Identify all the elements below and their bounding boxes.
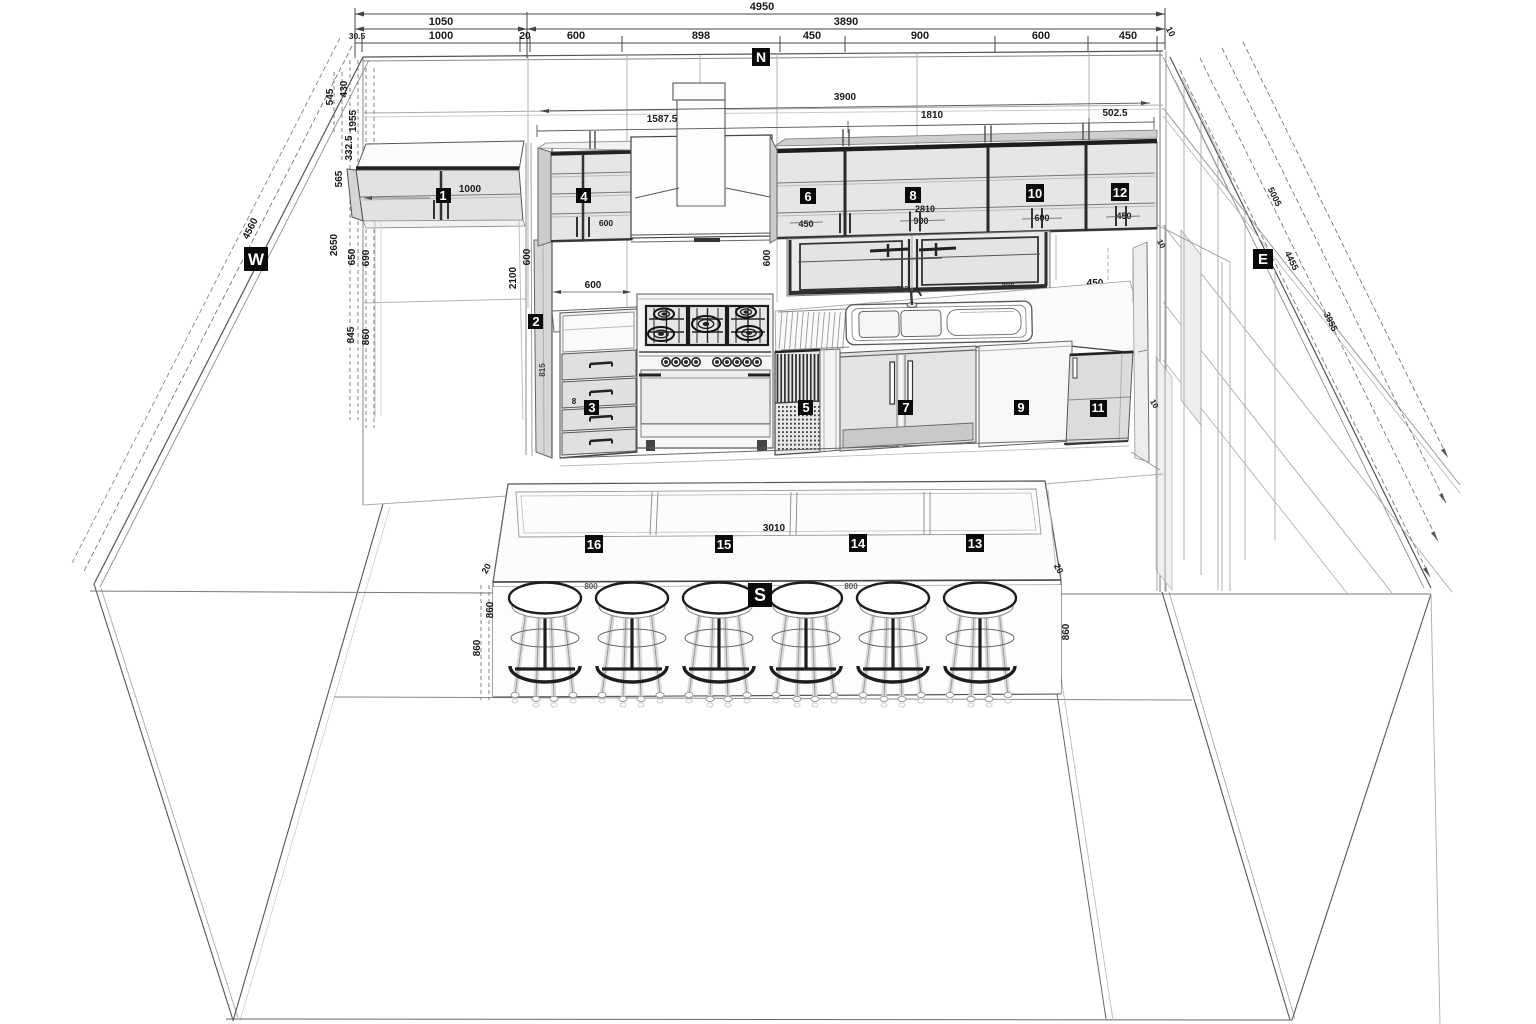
svg-text:2: 2 — [532, 314, 539, 329]
svg-text:16: 16 — [587, 537, 601, 552]
svg-text:8: 8 — [572, 397, 577, 406]
svg-text:650: 650 — [347, 248, 358, 265]
svg-text:S: S — [754, 585, 766, 605]
svg-text:600: 600 — [567, 30, 585, 42]
svg-text:430: 430 — [339, 80, 350, 97]
svg-text:3890: 3890 — [834, 16, 858, 28]
svg-text:545: 545 — [325, 88, 336, 105]
svg-text:10: 10 — [1028, 186, 1042, 201]
svg-text:4: 4 — [580, 189, 588, 204]
svg-text:650: 650 — [802, 287, 815, 296]
svg-text:30.5: 30.5 — [349, 31, 366, 41]
svg-text:600: 600 — [522, 248, 533, 265]
svg-text:4950: 4950 — [750, 1, 774, 13]
svg-text:800: 800 — [1002, 281, 1015, 290]
svg-text:8: 8 — [909, 188, 916, 203]
svg-text:11: 11 — [1092, 401, 1105, 415]
svg-text:3900: 3900 — [834, 92, 857, 103]
svg-text:600: 600 — [896, 284, 909, 293]
svg-text:450: 450 — [803, 30, 821, 42]
svg-text:12: 12 — [1113, 185, 1127, 200]
svg-text:900: 900 — [911, 30, 929, 42]
svg-text:5: 5 — [802, 400, 809, 415]
svg-text:14: 14 — [851, 536, 866, 551]
svg-text:800: 800 — [584, 582, 598, 591]
svg-text:1000: 1000 — [459, 184, 482, 195]
svg-text:600: 600 — [585, 280, 602, 291]
svg-text:6: 6 — [804, 189, 811, 204]
svg-text:600: 600 — [762, 249, 773, 266]
svg-text:600: 600 — [599, 218, 613, 228]
svg-text:860: 860 — [485, 601, 496, 618]
svg-text:1810: 1810 — [921, 110, 944, 121]
svg-text:1587.5: 1587.5 — [647, 114, 678, 125]
svg-text:20: 20 — [519, 31, 531, 42]
svg-text:3: 3 — [588, 400, 595, 415]
svg-text:15: 15 — [717, 537, 731, 552]
svg-text:600: 600 — [1032, 30, 1050, 42]
svg-text:1: 1 — [439, 188, 446, 203]
svg-text:N: N — [756, 49, 766, 65]
svg-text:860: 860 — [1061, 623, 1072, 640]
svg-text:13: 13 — [968, 536, 982, 551]
svg-text:W: W — [248, 250, 265, 269]
svg-text:690: 690 — [361, 249, 372, 266]
svg-text:3010: 3010 — [763, 523, 786, 534]
svg-text:502.5: 502.5 — [1102, 108, 1127, 119]
svg-text:2100: 2100 — [508, 266, 519, 289]
svg-text:565: 565 — [334, 170, 345, 187]
svg-text:1955: 1955 — [348, 109, 359, 132]
svg-text:815: 815 — [538, 363, 547, 377]
svg-text:1000: 1000 — [429, 30, 453, 42]
svg-text:860: 860 — [361, 328, 372, 345]
svg-text:2650: 2650 — [329, 233, 340, 256]
svg-text:1050: 1050 — [429, 16, 453, 28]
svg-text:450: 450 — [1119, 30, 1137, 42]
svg-text:860: 860 — [472, 639, 483, 656]
svg-text:E: E — [1258, 251, 1268, 268]
svg-text:7: 7 — [902, 400, 909, 415]
svg-text:898: 898 — [692, 30, 710, 42]
svg-text:332.5: 332.5 — [344, 135, 355, 160]
svg-text:9: 9 — [1017, 400, 1024, 415]
svg-text:2810: 2810 — [915, 204, 935, 214]
svg-text:800: 800 — [844, 582, 858, 591]
svg-text:450: 450 — [798, 219, 813, 229]
svg-text:845: 845 — [346, 326, 357, 343]
